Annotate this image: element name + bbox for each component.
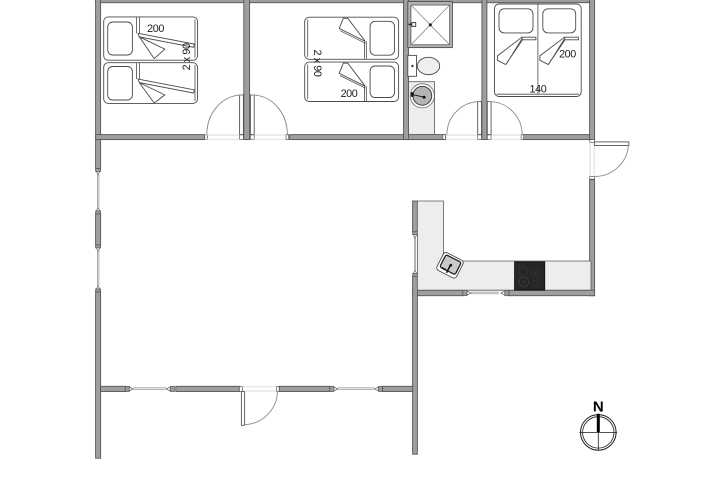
- svg-text:200: 200: [559, 49, 576, 61]
- svg-text:200: 200: [341, 88, 358, 100]
- svg-text:N: N: [593, 398, 604, 415]
- svg-text:2 x 90: 2 x 90: [311, 49, 323, 76]
- svg-text:200: 200: [147, 23, 164, 35]
- svg-text:2 x 90: 2 x 90: [181, 43, 193, 70]
- svg-text:140: 140: [529, 84, 546, 96]
